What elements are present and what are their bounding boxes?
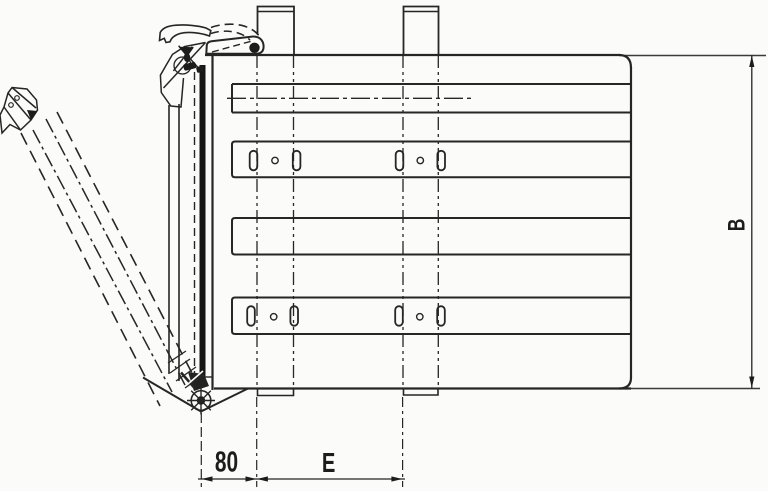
svg-text:E: E: [322, 448, 335, 479]
svg-text:80: 80: [215, 446, 238, 478]
svg-text:B: B: [724, 219, 750, 231]
